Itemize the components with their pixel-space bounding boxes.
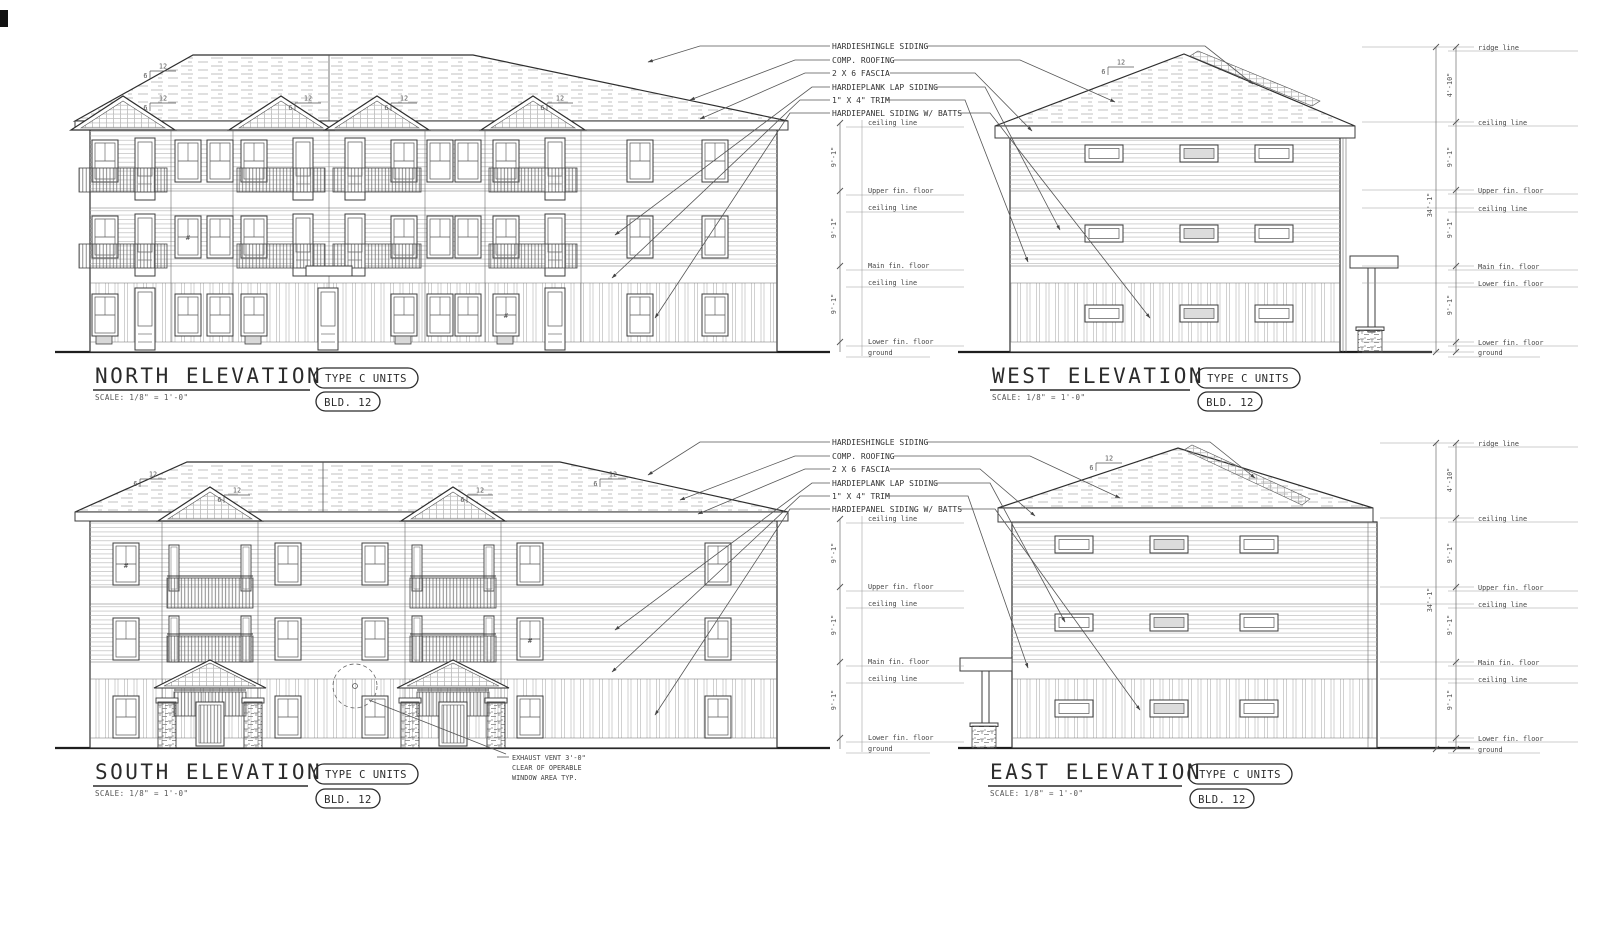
scale-note: SCALE: 1/8" = 1'-0" [95, 393, 188, 402]
level-label: Main fin. floor [1478, 263, 1539, 271]
level-label: Lower fin. floor [1478, 735, 1543, 743]
east-title-block: EAST ELEVATION SCALE: 1/8" = 1'-0" TYPE … [988, 760, 1292, 808]
stair-railing [167, 636, 253, 662]
level-label: ground [1478, 746, 1503, 754]
stone-pier [485, 698, 507, 748]
level-label: ceiling line [1478, 205, 1527, 213]
level-label: ceiling line [1478, 119, 1527, 127]
level-label: Upper fin. floor [1478, 187, 1543, 195]
vent-window [1150, 536, 1188, 553]
vent-window [1180, 225, 1218, 242]
west-elevation-drawing [958, 51, 1432, 352]
scale-note: SCALE: 1/8" = 1'-0" [990, 789, 1083, 798]
level-label: ceiling line [1478, 676, 1527, 684]
scale-note: SCALE: 1/8" = 1'-0" [992, 393, 1085, 402]
stair-railing [167, 578, 253, 608]
porch [960, 658, 1012, 748]
dim-floor-height: 9'-1" [830, 147, 838, 167]
entry-canopy [306, 266, 352, 276]
dim-floor-height: 9'-1" [830, 294, 838, 314]
balcony-railing [79, 244, 167, 268]
exhaust-note-line: WINDOW AREA TYP. [512, 774, 577, 782]
level-label: ceiling line [868, 279, 917, 287]
hip-roof [75, 55, 788, 121]
level-label: Main fin. floor [868, 658, 929, 666]
callout-label: 2 X 6 FASCIA [832, 465, 890, 474]
eave-fascia [998, 508, 1373, 522]
building-number-label: BLD. 12 [324, 397, 372, 409]
level-label: ridge line [1478, 440, 1519, 448]
level-label: Main fin. floor [1478, 659, 1539, 667]
view-title: WEST ELEVATION [992, 364, 1204, 388]
dimension-column-west: ridge line ceiling line Upper fin. floor… [1362, 44, 1578, 357]
level-label: Lower fin. floor [868, 338, 933, 346]
balcony-railing [333, 244, 421, 268]
view-title: EAST ELEVATION [990, 760, 1202, 784]
balcony-railing [333, 168, 421, 192]
type-units-label: TYPE C UNITS [1207, 373, 1289, 385]
dim-floor-height: 9'-1" [1446, 147, 1454, 167]
north-elevation-drawing: # # [55, 55, 830, 352]
level-label: ceiling line [868, 675, 917, 683]
eave-fascia [995, 126, 1355, 138]
callout-label: COMP. ROOFING [832, 56, 895, 65]
callout-label: HARDIEPLANK LAP SIDING [832, 83, 938, 92]
dim-floor-height: 9'-1" [1446, 218, 1454, 238]
exhaust-note-line: CLEAR OF OPERABLE [512, 764, 582, 772]
porch-roof [960, 658, 1012, 671]
exhaust-note-line: EXHAUST VENT 3'-0" [512, 754, 586, 762]
dim-floor-height: 9'-1" [830, 690, 838, 710]
stair-railing [410, 578, 496, 608]
view-title: NORTH ELEVATION [95, 364, 322, 388]
dim-overall-height: 34'-1" [1426, 193, 1434, 218]
balcony-railing [489, 168, 577, 192]
level-label: ceiling line [868, 204, 917, 212]
porch-post [982, 671, 989, 726]
level-column-top: ceiling line Upper fin. floor ceiling li… [830, 119, 964, 357]
dim-overall-height: 34'-1" [1426, 588, 1434, 613]
stair-entry-door [196, 702, 224, 746]
balcony-railing [489, 244, 577, 268]
building-number-label: BLD. 12 [1198, 794, 1246, 806]
porch [1343, 138, 1398, 352]
dim-attic-height: 4'-10" [1446, 73, 1454, 98]
south-title-block: SOUTH ELEVATION SCALE: 1/8" = 1'-0" TYPE… [93, 760, 418, 808]
eave-fascia [75, 121, 788, 130]
level-label: ceiling line [868, 515, 917, 523]
callout-label: HARDIEPANEL SIDING W/ BATTS [832, 109, 962, 118]
view-title: SOUTH ELEVATION [95, 760, 322, 784]
hip-roof [995, 54, 1355, 126]
west-title-block: WEST ELEVATION SCALE: 1/8" = 1'-0" TYPE … [990, 364, 1300, 411]
callout-label: 1" X 4" TRIM [832, 492, 890, 501]
window [92, 294, 118, 336]
level-label: Upper fin. floor [868, 187, 933, 195]
porch-post [1368, 268, 1375, 332]
dim-attic-height: 4'-10" [1446, 468, 1454, 493]
crawl-vent [497, 336, 513, 344]
dim-floor-height: 9'-1" [1446, 543, 1454, 563]
roof-slope-marker [1101, 59, 1134, 77]
callout-label: HARDIESHINGLE SIDING [832, 42, 929, 51]
level-label: ceiling line [1478, 601, 1527, 609]
stone-pier [156, 698, 178, 748]
callout-label: HARDIEPLANK LAP SIDING [832, 479, 938, 488]
drawing-sheet: 12 6 [0, 0, 1600, 938]
entry-door [318, 288, 338, 350]
level-label: Upper fin. floor [1478, 584, 1543, 592]
level-label: ceiling line [868, 119, 917, 127]
balcony-railing [237, 244, 325, 268]
level-label: ceiling line [1478, 515, 1527, 523]
type-units-label: TYPE C UNITS [1199, 769, 1281, 781]
dim-floor-height: 9'-1" [1446, 295, 1454, 315]
type-units-label: TYPE C UNITS [325, 769, 407, 781]
level-column-bottom: ceiling line Upper fin. floor ceiling li… [830, 515, 964, 753]
level-label: Upper fin. floor [868, 583, 933, 591]
door [545, 288, 565, 350]
dim-floor-height: 9'-1" [1446, 615, 1454, 635]
building-number-label: BLD. 12 [1206, 397, 1254, 409]
crawl-vent [96, 336, 112, 344]
level-label: Lower fin. floor [868, 734, 933, 742]
south-elevation-drawing: # # EXHAUST VENT 3'-0" CLEAR OF OPERABLE… [55, 462, 830, 782]
level-label: Main fin. floor [868, 262, 929, 270]
callout-label: 2 X 6 FASCIA [832, 69, 890, 78]
vent-window [1150, 700, 1188, 717]
balcony-railing [79, 168, 167, 192]
callout-label: HARDIEPANEL SIDING W/ BATTS [832, 505, 962, 514]
callout-label: 1" X 4" TRIM [832, 96, 890, 105]
vent-window [1180, 145, 1218, 162]
window [391, 294, 417, 336]
hip-roof [998, 448, 1373, 508]
level-label: ground [1478, 349, 1503, 357]
dim-floor-height: 9'-1" [830, 615, 838, 635]
level-label: ceiling line [868, 600, 917, 608]
crawl-vent [395, 336, 411, 344]
scale-note: SCALE: 1/8" = 1'-0" [95, 789, 188, 798]
dimension-column-east: ridge line ceiling line Upper fin. floor… [1380, 440, 1578, 754]
level-label: Lower fin. floor [1478, 339, 1543, 347]
level-label: ground [868, 745, 893, 753]
type-units-label: TYPE C UNITS [325, 373, 407, 385]
stair-entry-door [439, 702, 467, 746]
building-number-label: BLD. 12 [324, 794, 372, 806]
balcony-railing [237, 168, 325, 192]
east-elevation-drawing [958, 445, 1470, 748]
stone-pier [242, 698, 264, 748]
stone-pier [399, 698, 421, 748]
vent-window [1180, 305, 1218, 322]
stone-pier [972, 726, 996, 748]
north-title-block: NORTH ELEVATION SCALE: 1/8" = 1'-0" TYPE… [93, 364, 418, 411]
level-label: Lower fin. floor [1478, 280, 1543, 288]
callout-label: HARDIESHINGLE SIDING [832, 438, 929, 447]
dim-floor-height: 9'-1" [830, 543, 838, 563]
sheet-edge-mark [0, 10, 8, 27]
vent-window [1150, 614, 1188, 631]
door [135, 288, 155, 350]
elevations-canvas: 12 6 [0, 0, 1600, 938]
level-label: ridge line [1478, 44, 1519, 52]
callout-label: COMP. ROOFING [832, 452, 895, 461]
crawl-vent [245, 336, 261, 344]
dim-floor-height: 9'-1" [1446, 690, 1454, 710]
stone-pier [1358, 330, 1382, 352]
window [241, 294, 267, 336]
stair-railing [410, 636, 496, 662]
level-label: ground [868, 349, 893, 357]
dim-floor-height: 9'-1" [830, 218, 838, 238]
